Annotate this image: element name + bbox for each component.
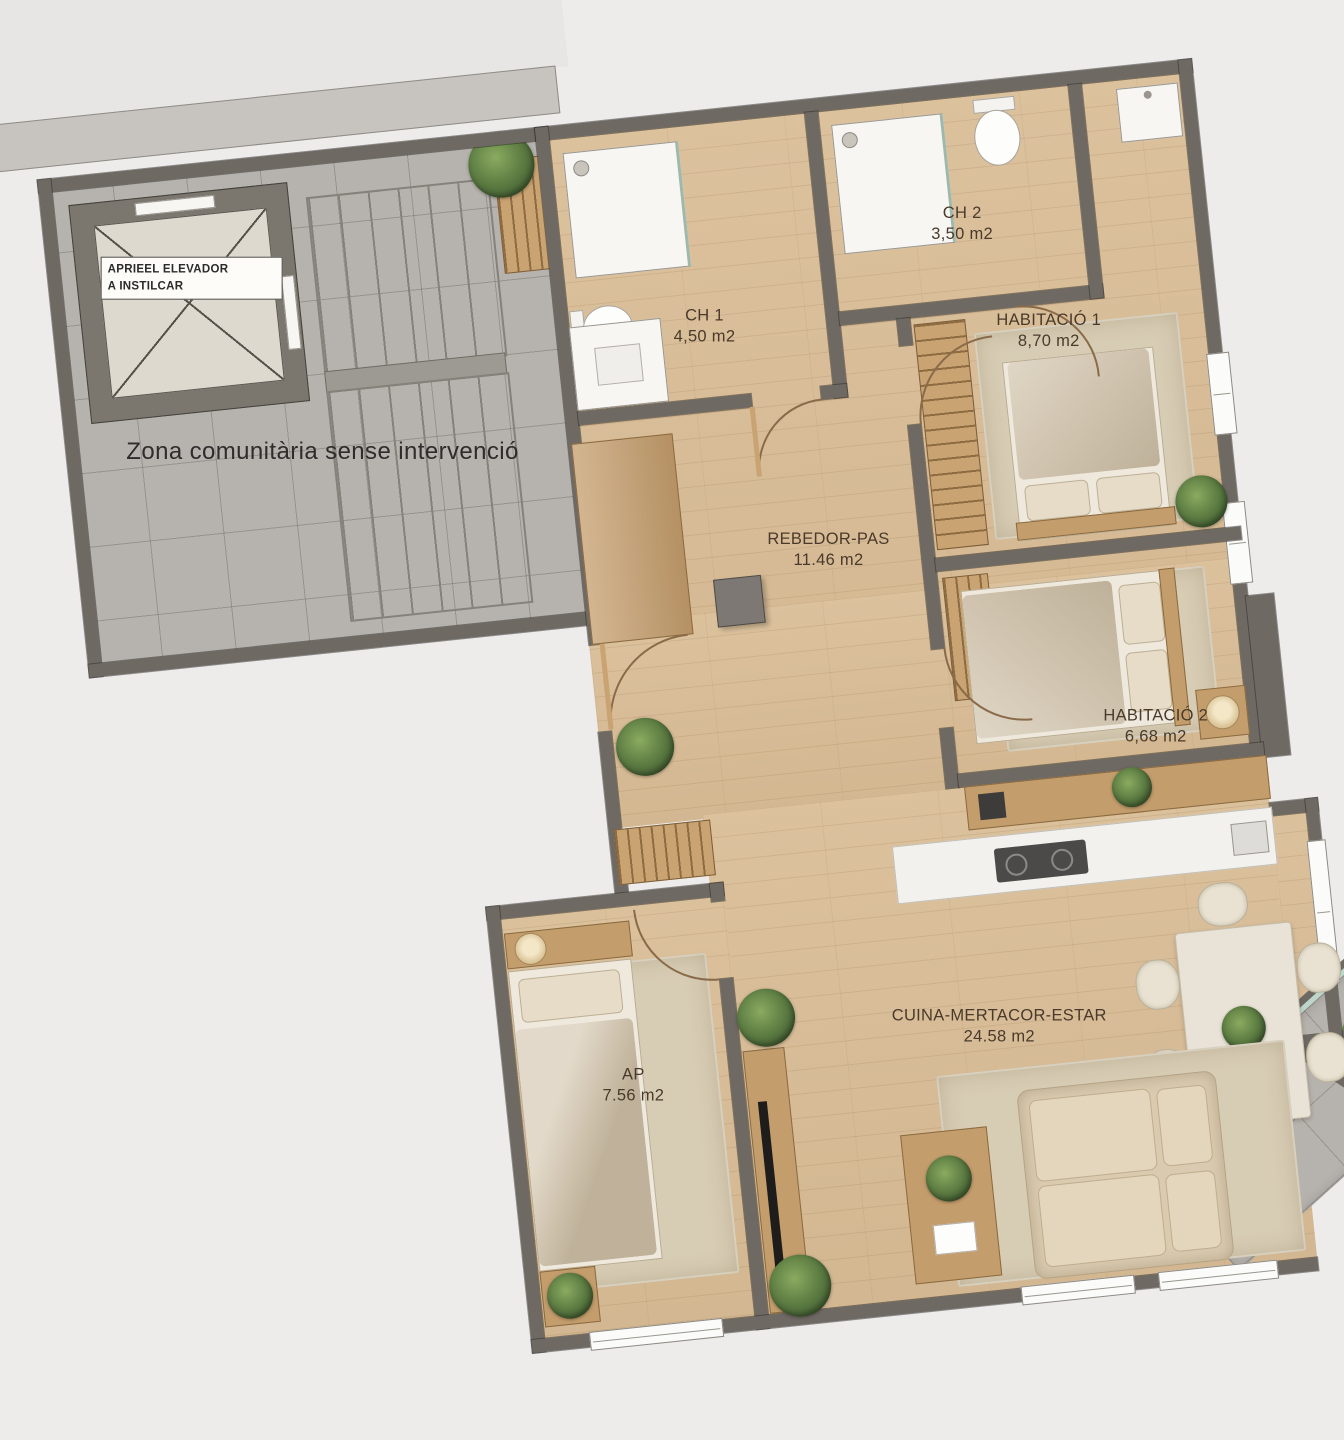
shower-head-ch1	[572, 160, 590, 178]
kitchen-sink	[1230, 820, 1269, 856]
sofa-back-pillow-1	[1156, 1084, 1214, 1167]
coffee-table	[900, 1126, 1002, 1284]
room-name-rebedor: REBEDOR-PAS	[767, 529, 889, 550]
room-area-rebedor: 11.46 m2	[767, 550, 889, 571]
room-label-habitacio1: HABITACIÓ 1 8,70 m2	[996, 310, 1101, 351]
shower-ch1	[563, 141, 692, 278]
floor-plan: APRIEEL ELEVADOR A INSTILCAR Zona comuni…	[38, 55, 1344, 1434]
burner-icon	[1004, 853, 1028, 877]
kitchen-appliance-icon	[978, 792, 1007, 821]
books-icon	[933, 1221, 978, 1255]
room-name-ap: AP	[603, 1064, 665, 1085]
vanity-hab1-corner	[1116, 83, 1183, 143]
wall-ch1-bottom-b	[820, 384, 847, 400]
bookshelf-hall	[614, 819, 716, 885]
room-label-rebedor: REBEDOR-PAS 11.46 m2	[767, 529, 889, 570]
room-area-ap: 7.56 m2	[603, 1085, 665, 1106]
room-area-cuina: 24.58 m2	[892, 1026, 1107, 1047]
pillow-hab2-2	[1125, 649, 1173, 713]
elevator-door-slat	[134, 195, 215, 216]
hall-pouf	[713, 575, 766, 628]
duvet-hab2	[962, 580, 1126, 739]
bed-double	[1002, 347, 1172, 542]
room-label-ch1: CH 1 4,50 m2	[674, 306, 736, 347]
elevator-label: APRIEEL ELEVADOR A INSTILCAR	[101, 257, 283, 300]
hall-washbasin-cabinet	[569, 318, 669, 411]
room-area-ch2: 3,50 m2	[931, 224, 993, 245]
room-label-ch2: CH 2 3,50 m2	[931, 203, 993, 244]
room-name-habitacio1: HABITACIÓ 1	[996, 310, 1101, 331]
shower-head-ch2	[841, 131, 859, 149]
sofa-cushion-2	[1037, 1174, 1167, 1268]
room-name-ch1: CH 1	[674, 306, 736, 327]
hall-tall-closet	[571, 433, 694, 645]
stairs-upper-flight	[306, 178, 508, 375]
elevator-label-line1: APRIEEL ELEVADOR	[108, 264, 229, 276]
room-label-habitacio2: HABITACIÓ 2 6,68 m2	[1103, 706, 1208, 747]
basin	[594, 343, 644, 386]
room-label-cuina: CUINA-MERTACOR-ESTAR 24.58 m2	[892, 1006, 1107, 1047]
plant-coffee-table	[924, 1153, 975, 1204]
room-area-habitacio1: 8,70 m2	[996, 330, 1101, 351]
faucet-icon	[1143, 90, 1152, 99]
elevator-cab	[94, 207, 285, 398]
stairs-lower-flight	[326, 372, 533, 622]
elevator-shaft	[68, 182, 310, 424]
sofa	[1016, 1070, 1235, 1280]
pillow-hab2-1	[1118, 581, 1166, 645]
room-name-habitacio2: HABITACIÓ 2	[1103, 706, 1208, 727]
elevator-label-line2: A INSTILCAR	[108, 280, 184, 292]
room-name-cuina: CUINA-MERTACOR-ESTAR	[892, 1006, 1107, 1027]
communal-zone-label: Zona comunitària sense intervenció	[126, 437, 518, 467]
sofa-back-pillow-2	[1165, 1170, 1223, 1253]
wall-hall-hab-a	[897, 318, 913, 346]
pillow-ap	[518, 969, 624, 1023]
room-name-ch2: CH 2	[931, 203, 993, 224]
room-area-habitacio2: 6,68 m2	[1103, 726, 1208, 747]
duvet-double	[1007, 348, 1161, 480]
burner-icon-2	[1050, 848, 1074, 872]
sofa-cushion-1	[1028, 1088, 1158, 1182]
duvet-ap	[515, 1018, 657, 1267]
room-label-ap: AP 7.56 m2	[603, 1064, 665, 1105]
cooktop	[994, 839, 1089, 882]
wall-tv-upper	[710, 882, 725, 901]
room-area-ch1: 4,50 m2	[674, 326, 736, 347]
